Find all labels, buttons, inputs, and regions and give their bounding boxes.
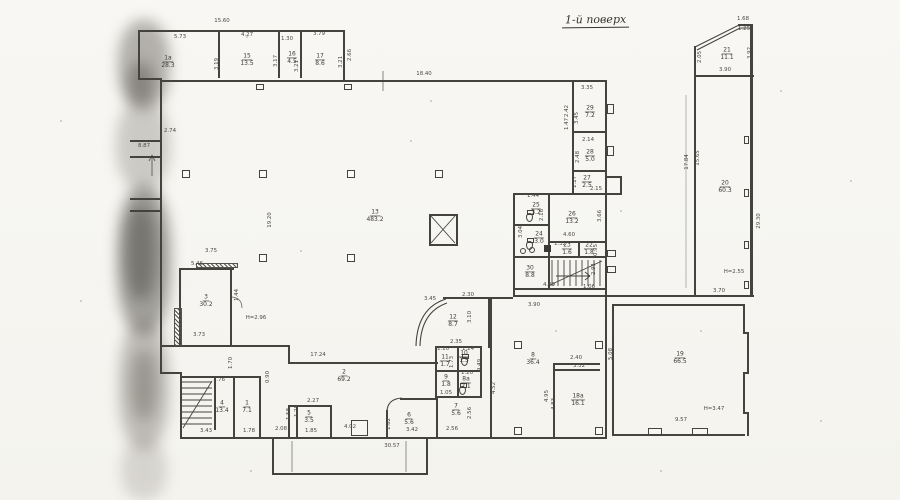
- dim-label: 3.43: [200, 428, 212, 434]
- wall: [272, 439, 274, 475]
- dim-label: 4.09: [543, 282, 555, 288]
- dim-label: 1.05: [440, 390, 452, 396]
- dim-label: 0.90: [265, 371, 271, 383]
- dim-label: 3.04: [518, 226, 524, 238]
- wall: [180, 372, 182, 439]
- scan-smudge: [121, 440, 167, 500]
- wall: [233, 378, 235, 437]
- wall: [605, 176, 622, 178]
- dim-label: 5.46: [191, 261, 203, 267]
- room-number: 7: [453, 403, 459, 410]
- room-label: 17.1: [242, 400, 251, 414]
- dim-label: 15.65: [695, 150, 701, 165]
- wall: [160, 80, 162, 374]
- dim-label: 1.78: [243, 428, 255, 434]
- room-label: 13483.2: [366, 209, 383, 223]
- room-number: 1: [244, 400, 250, 407]
- wall: [572, 170, 605, 172]
- dim-label: 2.40: [570, 355, 582, 361]
- room-area: 5.6: [404, 419, 413, 426]
- room-area: 8.7: [448, 321, 458, 328]
- column: [347, 170, 355, 178]
- room-label: 75.6: [451, 403, 460, 417]
- room-area: 1.6: [562, 249, 572, 256]
- room-label: 269.2: [337, 369, 350, 383]
- dim-label: 1.30: [281, 36, 293, 42]
- room-number: 12: [448, 314, 458, 321]
- wall: [138, 78, 162, 80]
- wall: [612, 434, 745, 436]
- room-area: 36.4: [526, 359, 539, 366]
- room-label: 164.5: [287, 51, 297, 65]
- room-label: 101.5: [459, 350, 469, 364]
- room-area: 16.1: [571, 400, 585, 407]
- room-number: 20: [720, 180, 730, 187]
- page-title: 1-й поверх: [562, 13, 629, 29]
- room-area: 11.1: [720, 54, 733, 61]
- dim-label: 1.85: [305, 428, 317, 434]
- dim-label: 1.44: [527, 193, 539, 199]
- wall: [490, 297, 492, 437]
- room-area: 13.2: [565, 218, 578, 225]
- wall: [743, 332, 749, 334]
- room-number: 6: [406, 412, 412, 419]
- wall: [180, 437, 607, 439]
- dim-label: 3.45: [574, 112, 580, 124]
- wall: [130, 140, 162, 142]
- room-area: 1.5: [459, 357, 469, 364]
- room-area: 5.6: [451, 410, 460, 417]
- wall: [513, 256, 605, 258]
- dim-label: 1.70: [228, 357, 234, 369]
- wall: [179, 268, 234, 270]
- wall: [130, 198, 162, 200]
- dim-label: 9.57: [675, 417, 687, 423]
- room-number: 22: [584, 242, 594, 249]
- room12-curved-wall: [416, 299, 447, 346]
- wall: [743, 412, 749, 414]
- pilaster: [607, 250, 616, 257]
- room-area: 8.6: [315, 60, 325, 67]
- scan-speck: [430, 100, 432, 102]
- room-label: 91.8: [441, 374, 450, 388]
- dim-label: 3.92: [747, 47, 753, 59]
- scan-speck: [80, 300, 82, 302]
- pilaster: [607, 266, 616, 273]
- dim-label: 3.45: [424, 296, 436, 302]
- room-area: 69.2: [337, 376, 350, 383]
- room-label: 1а28.3: [161, 55, 174, 69]
- dim-label: 5.08: [608, 348, 614, 360]
- dim-label: 3.21: [338, 56, 344, 68]
- wall: [743, 372, 749, 374]
- dim-label: 3.66: [597, 210, 603, 222]
- room-label: 285.0: [585, 149, 595, 163]
- room-number: 15: [242, 53, 252, 60]
- room-label: 53.5: [304, 410, 313, 424]
- wall: [612, 304, 745, 306]
- dim-label: 1.28: [294, 405, 300, 417]
- scan-smudge: [128, 62, 154, 104]
- room-area: 1.7: [440, 361, 450, 368]
- room-area: 2.1: [461, 383, 471, 390]
- wall: [230, 268, 232, 345]
- room-label: 65.6: [404, 412, 413, 426]
- room-number: 9: [443, 374, 449, 381]
- wall: [694, 46, 696, 77]
- room-number: 8: [530, 352, 536, 359]
- column: [182, 170, 190, 178]
- room-label: 253.2: [531, 202, 541, 216]
- scan-speck: [60, 120, 62, 122]
- wall: [130, 156, 162, 158]
- dim-label: 3.90: [528, 302, 540, 308]
- dim-label: 2.14: [582, 137, 594, 143]
- dim-label: 1.76: [213, 377, 225, 383]
- wall: [429, 214, 431, 246]
- wall: [259, 376, 261, 437]
- column: [595, 341, 603, 349]
- scan-speck: [555, 330, 557, 332]
- room-label: 243.0: [534, 231, 544, 245]
- room-area: 4.5: [287, 58, 297, 65]
- room-label: 1966.5: [673, 351, 686, 365]
- dim-label: 30.57: [384, 443, 399, 449]
- wall: [218, 32, 220, 78]
- column: [514, 427, 522, 435]
- dim-label: 2.56: [446, 426, 458, 432]
- dim-label: 1.58: [286, 408, 292, 420]
- room-area: 3.0: [534, 238, 544, 245]
- room-number: 27: [582, 175, 592, 182]
- dim-label: 3.42: [406, 427, 418, 433]
- dim-label: 3.73: [193, 332, 205, 338]
- room-area: 483.2: [366, 216, 383, 223]
- column: [435, 170, 443, 178]
- room-label: 1513.5: [240, 53, 253, 67]
- dim-label: 4.60: [563, 232, 575, 238]
- room-area: 3.5: [304, 417, 313, 424]
- column: [259, 254, 267, 262]
- room-area: 66.5: [673, 358, 686, 365]
- room-number: 28: [585, 149, 595, 156]
- dim-label: 2.35: [450, 339, 462, 345]
- wall: [400, 398, 438, 400]
- dim-label: 18.40: [416, 71, 431, 77]
- dim-label: 3.75: [205, 248, 217, 254]
- wall: [694, 75, 754, 77]
- scan-speck: [410, 140, 412, 142]
- room-area: 28.3: [161, 62, 174, 69]
- dim-label: 3.35: [581, 85, 593, 91]
- sink-icon: [529, 247, 535, 253]
- dim-label: H=2.55: [724, 269, 745, 275]
- wall: [513, 193, 515, 297]
- wall: [330, 405, 332, 437]
- room-number: 16: [287, 51, 297, 58]
- room-area: 30.2: [199, 301, 212, 308]
- dim-label: 2.27: [307, 398, 319, 404]
- room-number: 10: [459, 350, 469, 357]
- room-area: 8.8: [525, 272, 535, 279]
- scan-speck: [250, 470, 252, 472]
- scan-speck: [620, 210, 622, 212]
- pilaster: [744, 281, 749, 289]
- dim-label: 2.74: [164, 128, 176, 134]
- room-area: 13.5: [240, 60, 253, 67]
- room-area: 60.3: [718, 187, 731, 194]
- wall: [300, 32, 302, 78]
- room-number: 30: [525, 265, 535, 272]
- room-label: 836.4: [526, 352, 539, 366]
- dim-label: 3.79: [313, 31, 325, 37]
- wall: [426, 439, 428, 475]
- wall: [620, 176, 622, 195]
- room-label: 231.6: [562, 242, 572, 256]
- room-label: 330.2: [199, 294, 212, 308]
- wall: [290, 362, 438, 364]
- wall: [694, 75, 696, 297]
- room-label: 272.5: [582, 175, 592, 189]
- dim-label: 1.47: [564, 118, 570, 130]
- dim-label: 17.24: [310, 352, 325, 358]
- room-label: 308.8: [525, 265, 535, 279]
- pilaster: [692, 428, 708, 435]
- room-label: 2111.1: [720, 47, 733, 61]
- wall: [750, 24, 753, 297]
- dim-label: 1.62: [386, 418, 392, 430]
- wall: [130, 210, 162, 212]
- room-number: 29: [585, 105, 595, 112]
- room-number: 1а: [163, 55, 173, 62]
- wall: [743, 304, 745, 334]
- dim-label: 2.42: [564, 105, 570, 117]
- dim-label: 8.87: [138, 143, 150, 149]
- pilaster: [744, 241, 749, 249]
- room-area: 5.0: [585, 156, 595, 163]
- room-label: 8а2.1: [461, 376, 471, 390]
- dim-label: 3.19: [214, 58, 220, 70]
- wall: [488, 297, 490, 348]
- dim-label: 9.49: [477, 359, 483, 371]
- scan-smudge: [126, 205, 156, 300]
- room6-curved-wall: [387, 398, 402, 412]
- dim-label: 1.68: [737, 16, 749, 22]
- pilaster: [344, 84, 352, 90]
- dim-label: H=2.96: [246, 315, 267, 321]
- dim-label: 2.91: [591, 263, 597, 275]
- wall: [612, 304, 614, 436]
- scan-speck: [850, 180, 852, 182]
- left-stair-treads: [182, 382, 212, 424]
- dim-label: 4.27: [241, 32, 253, 38]
- pilaster: [256, 84, 264, 90]
- wall: [572, 131, 605, 133]
- wall: [435, 396, 480, 398]
- dim-label: 1.06: [583, 284, 595, 290]
- room-number: 24: [534, 231, 544, 238]
- column: [595, 427, 603, 435]
- solid-column: [544, 245, 551, 252]
- room-number: 13: [370, 209, 380, 216]
- room-label: 413.4: [215, 400, 228, 414]
- pilaster: [607, 104, 614, 114]
- pilaster: [744, 136, 749, 144]
- room-area: 3.2: [531, 209, 541, 216]
- wall: [435, 346, 437, 398]
- wall: [429, 214, 458, 216]
- scan-speck: [660, 470, 662, 472]
- wall: [456, 214, 458, 246]
- column: [259, 170, 267, 178]
- floor-plan-sheet: 1-й поверх 15.605.734.271.303.792.663.19…: [0, 0, 900, 500]
- wall: [480, 346, 482, 398]
- wall: [747, 412, 749, 436]
- column: [514, 341, 522, 349]
- dim-label: 3.32: [573, 363, 585, 369]
- room-label: 178.6: [315, 53, 325, 67]
- wall: [138, 30, 140, 80]
- dim-label: 2.48: [575, 151, 581, 163]
- scan-speck: [820, 420, 822, 422]
- room-label: 2613.2: [565, 211, 578, 225]
- dim-label: 2.66: [347, 49, 353, 61]
- room-area: 13.4: [215, 407, 228, 414]
- dim-label: 3.90: [719, 67, 731, 73]
- wall: [272, 473, 428, 475]
- dim-label: 3.10: [467, 311, 473, 323]
- room-area: 2.5: [582, 182, 592, 189]
- dim-label: 1.44: [234, 289, 240, 301]
- wall: [443, 297, 513, 299]
- room-area: 7.1: [242, 407, 251, 414]
- dim-label: 2.08: [275, 426, 287, 432]
- left-stair-break-line: [183, 381, 212, 428]
- room-area: 1.8: [584, 249, 594, 256]
- wall: [747, 332, 749, 374]
- room-number: 5: [306, 410, 312, 417]
- wall: [605, 80, 607, 439]
- room-number: 25: [531, 202, 541, 209]
- wall: [160, 372, 182, 374]
- room-number: 21: [722, 47, 732, 54]
- hatched-wall: [174, 308, 182, 346]
- room-label: 111.7: [440, 354, 450, 368]
- room-area: 7.2: [585, 112, 595, 119]
- dim-label: 1.10: [437, 346, 449, 352]
- dim-label: 2.56: [467, 407, 473, 419]
- room-number: 11: [440, 354, 450, 361]
- scan-smudge: [132, 350, 156, 420]
- column: [347, 254, 355, 262]
- room-number: 8а: [461, 376, 471, 383]
- room-number: 4: [219, 400, 225, 407]
- room-number: 26: [567, 211, 577, 218]
- dim-label: 1.17: [572, 176, 578, 188]
- wall: [435, 370, 480, 372]
- room-label: 18а16.1: [571, 393, 585, 407]
- main-stair-arrow: [556, 272, 590, 280]
- dim-label: H=3.47: [704, 406, 725, 412]
- room-number: 23: [562, 242, 572, 249]
- pilaster: [648, 428, 662, 435]
- room-number: 2: [341, 369, 347, 376]
- wall: [436, 396, 438, 437]
- dim-label: 3.70: [713, 288, 725, 294]
- dim-label: 4.83: [551, 398, 557, 410]
- dim-label: 2.05: [697, 51, 703, 63]
- room-number: 18а: [571, 393, 585, 400]
- dim-label: 2.30: [462, 292, 474, 298]
- dim-label: 15.60: [214, 18, 229, 24]
- room-number: 3: [203, 294, 209, 301]
- wall: [513, 295, 612, 297]
- sink-icon: [520, 248, 526, 254]
- dim-label: 17.84: [684, 154, 690, 169]
- wall: [160, 80, 607, 82]
- dim-label: 29.30: [756, 213, 762, 228]
- wall: [743, 372, 745, 414]
- dim-label: 3.17: [273, 55, 279, 67]
- dim-label: 4.95: [544, 390, 550, 402]
- room-number: 17: [315, 53, 325, 60]
- pilaster: [744, 189, 749, 197]
- wall: [610, 295, 754, 297]
- pilaster: [607, 146, 614, 156]
- scan-speck: [700, 330, 702, 332]
- room-area: 1.8: [441, 381, 450, 388]
- room-label: 221.8: [584, 242, 594, 256]
- scan-speck: [300, 250, 302, 252]
- scan-speck: [780, 90, 782, 92]
- room-label: 128.7: [448, 314, 458, 328]
- room-number: 19: [675, 351, 685, 358]
- dim-label: 5.73: [174, 34, 186, 40]
- dim-label: 1.25: [738, 26, 750, 32]
- dim-label: 4.52: [491, 382, 497, 394]
- wall: [429, 244, 458, 246]
- shaft-x-brace: [431, 216, 455, 243]
- room-label: 297.2: [585, 105, 595, 119]
- room-label: 2060.3: [718, 180, 731, 194]
- wall: [553, 369, 600, 371]
- dim-label: 19.20: [267, 212, 273, 227]
- dim-label: 4.02: [344, 424, 356, 430]
